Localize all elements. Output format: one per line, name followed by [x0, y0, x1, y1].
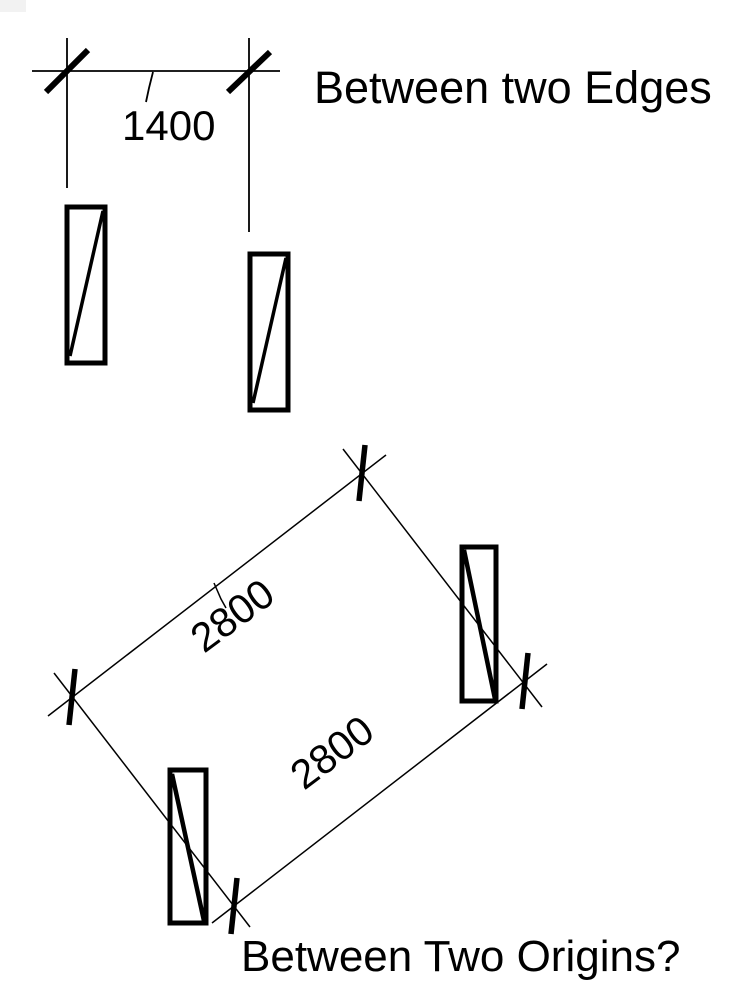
tick-right-vertex [522, 653, 528, 709]
window-diagonal [464, 550, 495, 699]
tick-left-vertex [69, 669, 75, 725]
dimension-value-2800-lower: 2800 [282, 707, 383, 799]
window-symbol-bottom-left [170, 770, 206, 923]
bottom-figure-caption: Between Two Origins? [241, 932, 680, 981]
rotated-dimension-line-upper [48, 455, 386, 716]
window-diagonal [70, 211, 103, 356]
top-figure-caption: Between two Edges [314, 62, 712, 113]
window-diagonal [172, 774, 204, 921]
window-diagonal [253, 258, 286, 403]
window-symbol-bottom-right [462, 547, 496, 701]
tick-apex [359, 445, 365, 501]
window-symbol-top-right [250, 254, 288, 410]
bottom-dimension-group [48, 445, 547, 934]
rotated-extension-line-right [343, 449, 542, 707]
dimension-value-1400: 1400 [122, 102, 215, 149]
tick-bottom-vertex [231, 878, 237, 934]
drawing-canvas: 1400 Between two Edges [0, 0, 744, 994]
rotated-extension-line-left [54, 673, 250, 927]
cad-dimension-illustration: 1400 Between two Edges [0, 0, 744, 994]
scan-artifact [0, 0, 26, 12]
window-symbol-top-left [67, 207, 105, 363]
dimension-value-2800-upper: 2800 [182, 570, 283, 661]
dimension-text-leader [146, 72, 153, 102]
